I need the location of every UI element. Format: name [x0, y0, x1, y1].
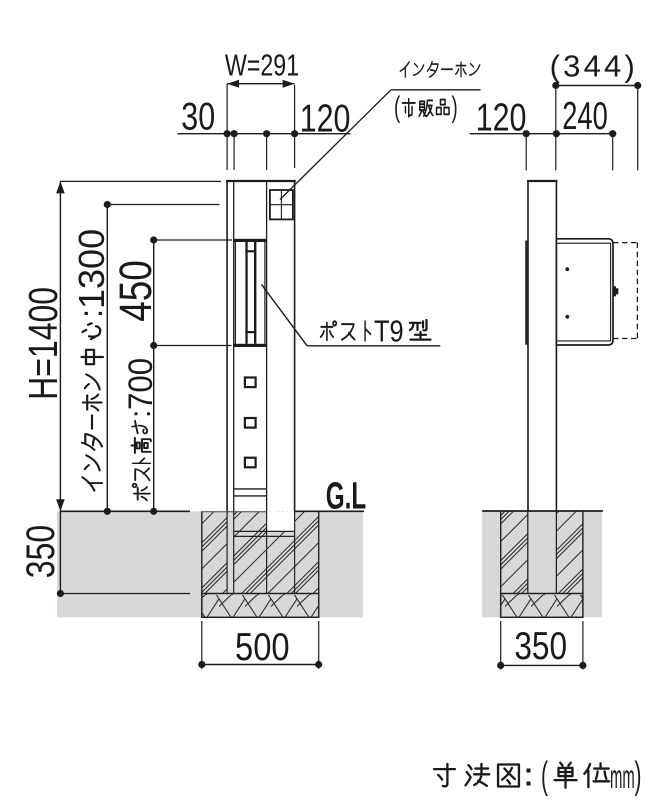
svg-text:(: ( — [394, 91, 401, 125]
svg-text:W=291: W=291 — [225, 47, 299, 82]
svg-text:120: 120 — [300, 97, 351, 140]
svg-text:240: 240 — [562, 95, 608, 138]
svg-text::: : — [72, 309, 109, 318]
svg-text:): ) — [452, 91, 458, 125]
svg-text:450: 450 — [111, 260, 161, 322]
svg-text:350: 350 — [18, 525, 63, 578]
svg-text:120: 120 — [476, 96, 527, 139]
svg-text:350: 350 — [514, 624, 567, 668]
svg-text:700: 700 — [121, 358, 160, 410]
svg-text:): ) — [635, 755, 642, 797]
svg-text:500: 500 — [235, 624, 290, 668]
svg-text:1300: 1300 — [71, 229, 112, 309]
svg-text:(: ( — [541, 755, 548, 797]
svg-text:T9: T9 — [374, 314, 404, 349]
svg-text:mm: mm — [610, 760, 635, 796]
svg-text:G.L: G.L — [326, 474, 367, 517]
svg-text:H=1400: H=1400 — [20, 287, 66, 400]
svg-text:30: 30 — [181, 95, 215, 138]
svg-text:(344): (344) — [550, 49, 638, 84]
